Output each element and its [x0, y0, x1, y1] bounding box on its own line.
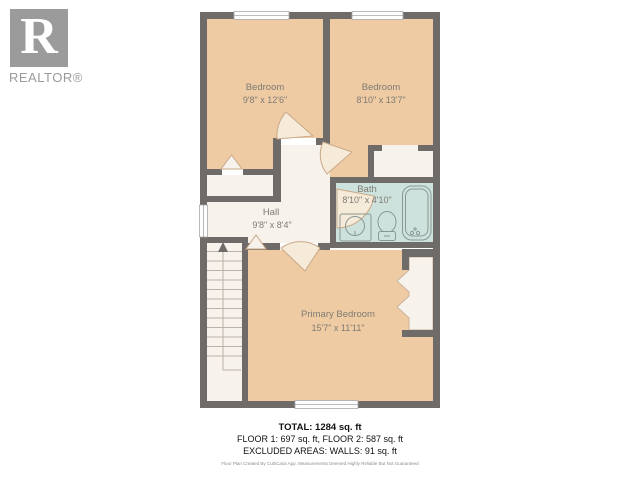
disclaimer-text: Floor Plan Created By CubiCasa App. Meas… [0, 461, 640, 466]
bath-dims: 8'10" x 4'10" [342, 195, 391, 205]
window-icon [234, 12, 289, 20]
wall-primary-closet-bottom [402, 330, 440, 337]
bedroom2-dims: 8'10" x 13'7" [356, 95, 405, 105]
wall-stairs-top [200, 237, 248, 243]
wall-corridor-left [273, 138, 281, 202]
hall-dims: 9'8" x 8'4" [252, 220, 291, 230]
wall-between-bedrooms [323, 12, 330, 145]
bedroom2-label: Bedroom [362, 82, 401, 93]
wall-primary-closet-left-stub [402, 249, 409, 270]
floor-areas-text: FLOOR 1: 697 sq. ft, FLOOR 2: 587 sq. ft [0, 434, 640, 446]
wall-bath-bottom [330, 242, 440, 248]
hall-label: Hall [263, 207, 279, 218]
floor-plan: Bedroom 9'8" x 12'6" Bedroom 8'10" x 13'… [0, 0, 640, 480]
window-icon [352, 12, 403, 20]
wall-closet1-bottom [200, 196, 281, 202]
excluded-areas-text: EXCLUDED AREAS: WALLS: 91 sq. ft [0, 446, 640, 458]
primary-bedroom-label: Primary Bedroom [301, 309, 375, 320]
bedroom1-dims: 9'8" x 12'6" [243, 95, 287, 105]
wall-closet1-top-right [243, 169, 273, 175]
staircase-floor [207, 243, 242, 401]
primary-bedroom-dims: 15'7" x 11'11" [311, 323, 364, 333]
window-icon [295, 401, 358, 409]
area-summary: TOTAL: 1284 sq. ft FLOOR 1: 697 sq. ft, … [0, 422, 640, 466]
wall-outer-right [433, 12, 440, 408]
wall-closet2-top-left [368, 145, 382, 151]
bedroom1-closet-floor [207, 175, 273, 196]
wall-stairs-right [242, 237, 248, 401]
wall-closet1-top-left [207, 169, 222, 175]
bedroom1-label: Bedroom [246, 82, 285, 93]
total-area-text: TOTAL: 1284 sq. ft [0, 422, 640, 434]
bath-label: Bath [357, 184, 377, 195]
wall-bath-top [330, 177, 440, 183]
wall-bath-left [330, 177, 336, 248]
window-icon [200, 205, 208, 237]
wall-closet2-top-right [418, 145, 440, 151]
